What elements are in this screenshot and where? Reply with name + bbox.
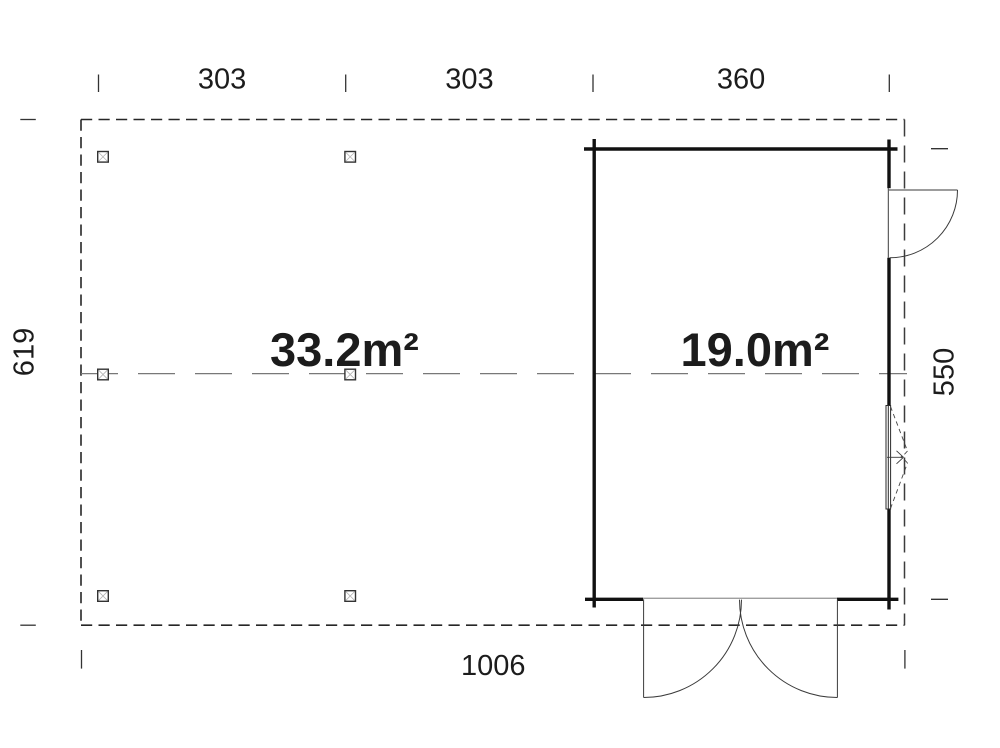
svg-text:360: 360 <box>717 64 765 96</box>
svg-text:1006: 1006 <box>461 650 526 682</box>
svg-text:303: 303 <box>445 64 493 96</box>
svg-text:550: 550 <box>929 348 961 396</box>
svg-text:619: 619 <box>8 328 40 376</box>
svg-text:33.2m²: 33.2m² <box>270 323 419 376</box>
svg-text:303: 303 <box>198 64 246 96</box>
svg-text:19.0m²: 19.0m² <box>681 323 830 376</box>
